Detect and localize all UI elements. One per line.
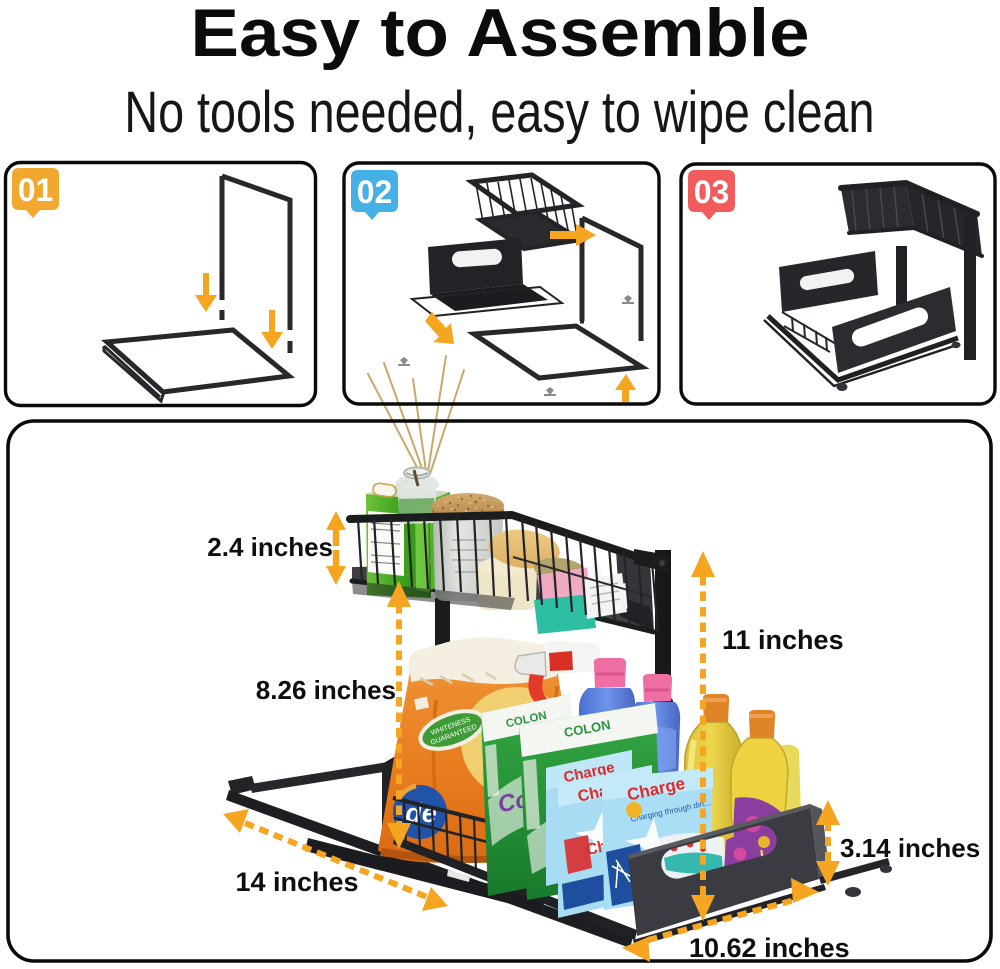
svg-text:02: 02 [357, 174, 393, 210]
svg-text:10.62 inches: 10.62 inches [689, 933, 850, 963]
svg-text:8.26 inches: 8.26 inches [256, 675, 396, 705]
svg-text:11 inches: 11 inches [722, 625, 844, 655]
svg-text:14 inches: 14 inches [235, 867, 358, 897]
svg-text:3.14 inches: 3.14 inches [840, 833, 980, 863]
svg-text:01: 01 [18, 172, 54, 208]
svg-text:2.4 inches: 2.4 inches [207, 532, 333, 562]
svg-text:03: 03 [694, 174, 730, 210]
